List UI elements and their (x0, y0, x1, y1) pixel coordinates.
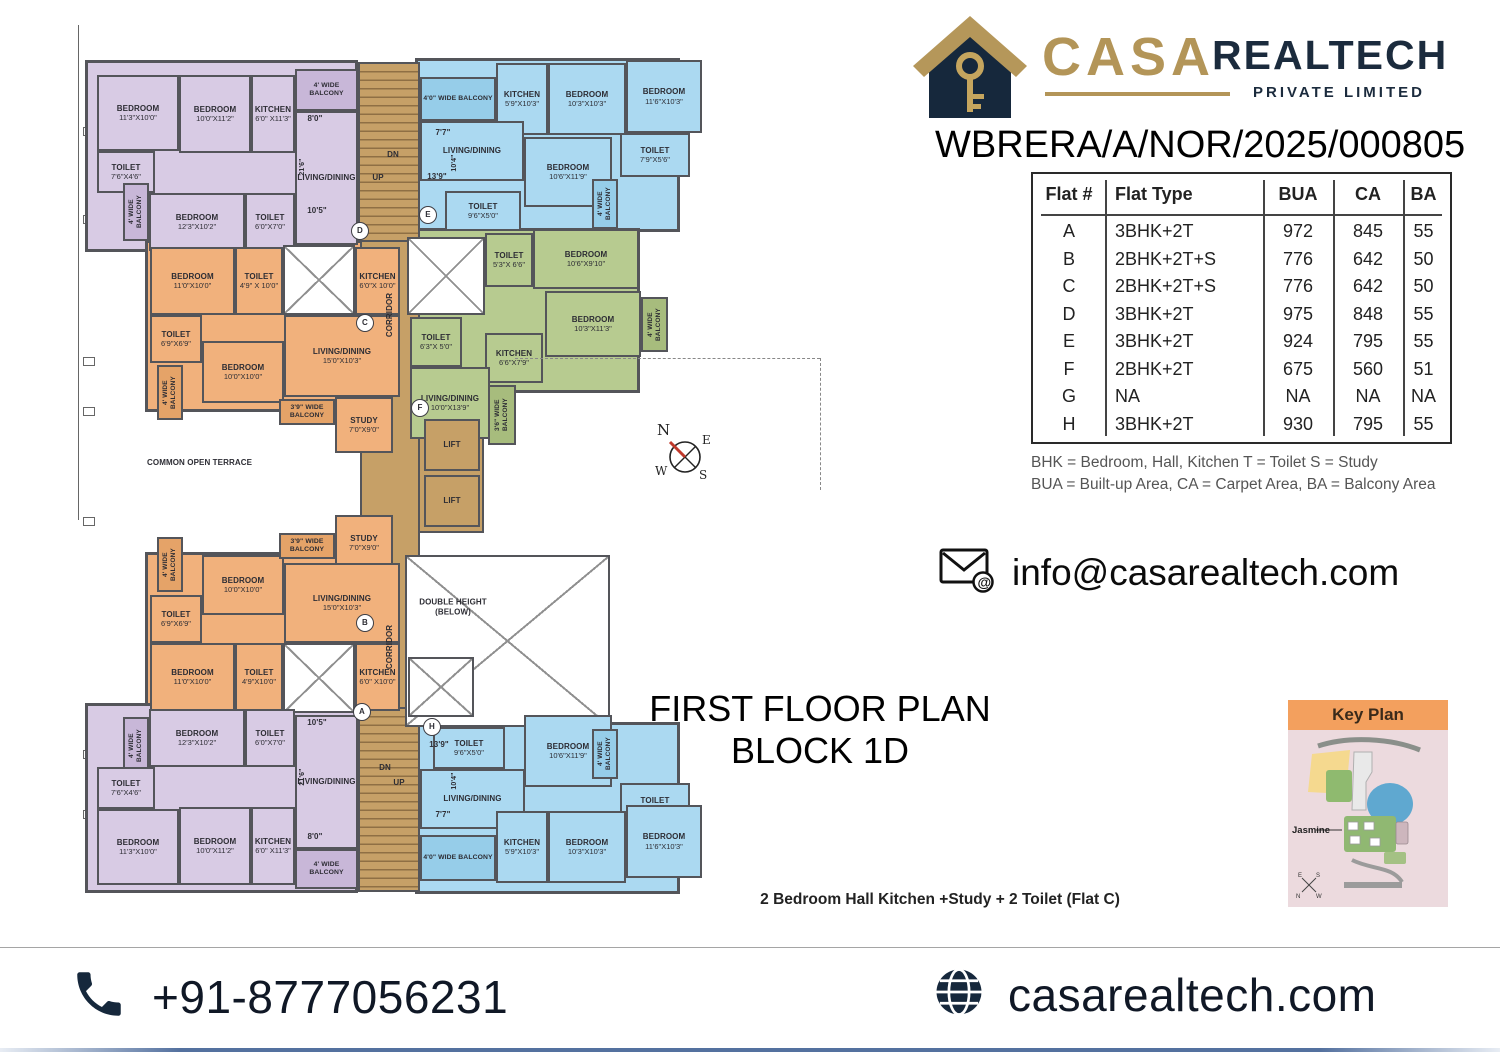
room-bedroom: BEDROOM11'3"X10'0" (97, 75, 179, 151)
svg-text:N: N (1296, 894, 1300, 900)
room-toilet: TOILET6'9"X6'9" (150, 595, 202, 643)
balcony-3-6-wide-balcony: 3'6" WIDE BALCONY (488, 385, 516, 445)
compass-rose: N E W S (647, 417, 721, 496)
room-toilet: TOILET6'0"X7'0" (245, 193, 295, 251)
dim-8-0: 8'0" (308, 832, 323, 842)
key-plan-map: E S N W Jasmine (1288, 730, 1448, 907)
dashh (515, 358, 618, 359)
room-bedroom: BEDROOM10'0"X11'2" (179, 807, 251, 885)
table-cell: E (1033, 331, 1105, 352)
plan-title-line2: BLOCK 1D (620, 730, 1020, 772)
brand-casa: CASA (1042, 26, 1215, 88)
room-bedroom: BEDROOM11'6"X10'3" (626, 60, 702, 133)
dim-10-5: 10'5" (307, 206, 327, 216)
svg-text:W: W (1316, 894, 1322, 900)
balcony-4-wide-balcony: 4' WIDE BALCONY (295, 849, 358, 889)
email-address: info@casarealtech.com (1012, 552, 1399, 594)
room-bedroom: BEDROOM12'3"X10'2" (149, 193, 245, 251)
table-cell: 642 (1333, 249, 1403, 270)
email-icon: @ (938, 546, 996, 599)
website-row: casarealtech.com (932, 965, 1377, 1024)
room-bedroom: BEDROOM11'6"X10'3" (626, 805, 702, 878)
rera-number: WBRERA/A/NOR/2025/000805 (935, 124, 1455, 167)
compass-west-label: W (655, 464, 668, 478)
table-row: H3BHK+2T93079555 (1033, 414, 1450, 435)
svg-text:@: @ (978, 574, 992, 590)
table-column-divider (1105, 180, 1107, 436)
brand-subtitle: PRIVATE LIMITED (1253, 84, 1425, 101)
table-cell: NA (1333, 386, 1403, 407)
room-toilet: TOILET4'9" X 10'0" (235, 247, 283, 315)
room-bedroom: BEDROOM10'0"X11'2" (179, 75, 251, 153)
balcony-4-wide-balcony: 4' WIDE BALCONY (123, 183, 149, 241)
phone-icon (70, 965, 128, 1028)
bottom-accent-line (0, 1048, 1500, 1052)
compass-east-label: E (702, 433, 711, 447)
col-flat-number: Flat # (1033, 184, 1105, 205)
room-bedroom: BEDROOM10'0"X10'0" (202, 341, 284, 403)
key-plan: Key Plan E S N W Jasmine (1288, 700, 1448, 907)
room-toilet: TOILET5'3"X 6'6" (485, 233, 533, 287)
col-bua: BUA (1263, 184, 1333, 205)
table-cell: B (1033, 249, 1105, 270)
table-cell: 675 (1263, 359, 1333, 380)
sq (83, 407, 95, 416)
table-cell: D (1033, 304, 1105, 325)
dim-8-0: 8'0" (308, 114, 323, 124)
phone-row: +91-8777056231 (70, 965, 508, 1028)
marker-f: F (411, 399, 429, 417)
table-cell: 55 (1403, 331, 1444, 352)
dim-7-7: 7'7" (436, 810, 451, 820)
casa-logo-icon (905, 10, 1035, 125)
table-cell: NA (1105, 386, 1263, 407)
balcony-4-wide-balcony: 4' WIDE BALCONY (641, 297, 668, 352)
dashh (618, 358, 820, 359)
table-cell: NA (1263, 386, 1333, 407)
table-header-divider (1041, 214, 1442, 216)
legend-line-1: BHK = Bedroom, Hall, Kitchen T = Toilet … (1031, 452, 1436, 474)
marker-h: H (423, 718, 441, 736)
balcony-3-9-wide-balcony: 3'9" WIDE BALCONY (279, 533, 335, 559)
table-cell: 848 (1333, 304, 1403, 325)
svg-text:E: E (1298, 873, 1302, 879)
footer-divider (0, 947, 1500, 948)
table-row: GNANANANA (1033, 386, 1450, 407)
dashv (820, 358, 821, 490)
room-bedroom: BEDROOM10'0"X10'0" (202, 555, 284, 615)
room-toilet: TOILET6'9"X6'9" (150, 315, 202, 363)
phone-number: +91-8777056231 (152, 970, 508, 1024)
balcony-4-wide-balcony: 4' WIDE BALCONY (295, 69, 358, 111)
table-row: A3BHK+2T97284555 (1033, 221, 1450, 242)
marker-c: C (356, 314, 374, 332)
dim-10-5: 10'5" (307, 718, 327, 728)
key-plan-site-label: Jasmine (1292, 825, 1330, 836)
svg-text:S: S (1316, 873, 1320, 879)
plan-title-line1: FIRST FLOOR PLAN (620, 688, 1020, 730)
stairwell-bottom (358, 707, 420, 892)
room-bedroom: BEDROOM10'3"X10'3" (548, 63, 626, 135)
table-cell: 51 (1403, 359, 1444, 380)
lift-lift: LIFT (424, 475, 480, 527)
shaft (283, 245, 355, 315)
table-cell: 560 (1333, 359, 1403, 380)
table-cell: 3BHK+2T (1105, 221, 1263, 242)
dim-7-7: 7'7" (436, 128, 451, 138)
balcony-4-wide-balcony: 4' WIDE BALCONY (157, 537, 183, 592)
table-cell: 50 (1403, 276, 1444, 297)
table-cell: C (1033, 276, 1105, 297)
table-cell: 2BHK+2T+S (1105, 276, 1263, 297)
col-ca: CA (1333, 184, 1403, 205)
table-row: F2BHK+2T67556051 (1033, 359, 1450, 380)
room-kitchen: KITCHEN5'9"X10'3" (496, 811, 548, 883)
table-cell: F (1033, 359, 1105, 380)
balcony-4-wide-balcony: 4' WIDE BALCONY (592, 729, 618, 779)
room-bedroom: BEDROOM12'3"X10'2" (149, 709, 245, 767)
room-bedroom: BEDROOM10'3"X10'3" (548, 811, 626, 883)
website-url: casarealtech.com (1008, 968, 1377, 1022)
table-cell: 776 (1263, 249, 1333, 270)
dim-up: UP (393, 778, 404, 788)
sq (83, 357, 95, 366)
marker-b: B (356, 614, 374, 632)
table-cell: 55 (1403, 414, 1444, 435)
table-column-divider (1333, 180, 1335, 436)
vline (78, 25, 79, 520)
col-flat-type: Flat Type (1105, 184, 1263, 205)
table-cell: 972 (1263, 221, 1333, 242)
shaft (407, 237, 485, 315)
room-bedroom: BEDROOM11'3"X10'0" (97, 809, 179, 885)
text-common-open-terrace: COMMON OPEN TERRACE (147, 458, 252, 468)
table-cell: 2BHK+2T (1105, 359, 1263, 380)
compass-south-label: S (699, 468, 707, 482)
shaft (408, 657, 474, 717)
globe-icon (932, 965, 986, 1024)
floor-plan: N E W S BEDROOM11'3"X10'0"BEDROOM10'0"X1… (75, 15, 843, 920)
dim-10-4: 10'4" (451, 154, 459, 171)
table-cell: 3BHK+2T (1105, 331, 1263, 352)
brand-realtech: REALTECH (1212, 32, 1448, 79)
room-toilet: TOILET6'3"X 5'0" (410, 317, 462, 367)
dim-13-9: 13'9" (429, 740, 449, 750)
table-cell: NA (1403, 386, 1444, 407)
table-cell: 2BHK+2T+S (1105, 249, 1263, 270)
table-cell: 642 (1333, 276, 1403, 297)
room-toilet: TOILET7'9"X5'6" (620, 133, 690, 177)
table-row: C2BHK+2T+S77664250 (1033, 276, 1450, 297)
marker-e: E (419, 206, 437, 224)
table-column-divider (1263, 180, 1265, 436)
table-cell: G (1033, 386, 1105, 407)
room-living-dining: LIVING/DINING15'0"X10'3" (284, 315, 400, 397)
table-row: E3BHK+2T92479555 (1033, 331, 1450, 352)
room-living-dining: LIVING/DINING15'0"X10'3" (284, 563, 400, 643)
table-column-divider (1403, 180, 1405, 436)
dim-dn: DN (387, 150, 399, 160)
plan-title: FIRST FLOOR PLAN BLOCK 1D (620, 688, 1020, 773)
brand-underline (1045, 92, 1230, 96)
room-bedroom: BEDROOM11'0"X10'0" (150, 247, 235, 315)
marker-d: D (351, 222, 369, 240)
room-study: STUDY7'0"X9'0" (335, 397, 393, 453)
flat-area-table: Flat # Flat Type BUA CA BA A3BHK+2T97284… (1031, 172, 1452, 444)
col-ba: BA (1403, 184, 1444, 205)
table-cell: A (1033, 221, 1105, 242)
room-toilet: TOILET7'6"X4'6" (97, 767, 155, 809)
room-kitchen: KITCHEN6'0" X11'3" (251, 807, 295, 885)
shaft (283, 643, 355, 713)
vtext-corridor: CORRIDOR (385, 625, 395, 669)
room-bedroom: BEDROOM11'0"X10'0" (150, 643, 235, 711)
legend-line-2: BUA = Built-up Area, CA = Carpet Area, B… (1031, 474, 1436, 496)
table-cell: 55 (1403, 221, 1444, 242)
dim-dn: DN (379, 763, 391, 773)
lift-lift: LIFT (424, 419, 480, 471)
abbreviation-legend: BHK = Bedroom, Hall, Kitchen T = Toilet … (1031, 452, 1436, 497)
room-bedroom: BEDROOM10'3"X11'3" (545, 291, 641, 357)
balcony-4-0-wide-balcony: 4'0" WIDE BALCONY (420, 835, 496, 881)
vtext-corridor: CORRIDOR (385, 293, 395, 337)
sq (83, 517, 95, 526)
dim-10-4: 10'4" (451, 772, 459, 789)
dim-21-6: 21'6" (299, 158, 307, 175)
room-toilet: TOILET9'6"X5'0" (445, 191, 521, 231)
table-cell: 795 (1333, 331, 1403, 352)
room-toilet: TOILET4'9"X10'0" (235, 643, 283, 711)
table-row: B2BHK+2T+S77664250 (1033, 249, 1450, 270)
table-cell: 924 (1263, 331, 1333, 352)
text2-double-height-below: DOUBLE HEIGHT (BELOW) (410, 597, 496, 616)
table-cell: 3BHK+2T (1105, 304, 1263, 325)
room-toilet: TOILET6'0"X7'0" (245, 709, 295, 767)
balcony-3-9-wide-balcony: 3'9" WIDE BALCONY (279, 399, 335, 425)
table-cell: H (1033, 414, 1105, 435)
compass-north-label: N (657, 421, 670, 439)
table-row: D3BHK+2T97584855 (1033, 304, 1450, 325)
balcony-4-wide-balcony: 4' WIDE BALCONY (157, 365, 183, 420)
balcony-4-0-wide-balcony: 4'0" WIDE BALCONY (420, 77, 496, 121)
room-kitchen: KITCHEN6'0" X11'3" (251, 75, 295, 153)
dim-up: UP (372, 173, 383, 183)
table-cell: 776 (1263, 276, 1333, 297)
table-cell: 930 (1263, 414, 1333, 435)
table-cell: 50 (1403, 249, 1444, 270)
balcony-4-wide-balcony: 4' WIDE BALCONY (592, 179, 618, 229)
table-cell: 3BHK+2T (1105, 414, 1263, 435)
flat-c-caption: 2 Bedroom Hall Kitchen +Study + 2 Toilet… (700, 891, 1180, 909)
table-cell: 975 (1263, 304, 1333, 325)
table-cell: 795 (1333, 414, 1403, 435)
dim-13-9: 13'9" (427, 172, 447, 182)
flat-table-body: A3BHK+2T97284555B2BHK+2T+S77664250C2BHK+… (1033, 214, 1450, 442)
room-bedroom: BEDROOM10'6"X9'10" (533, 229, 639, 289)
email-row: @ info@casarealtech.com (938, 546, 1399, 599)
room-living-dining: LIVING/DINING (295, 111, 358, 245)
key-plan-title: Key Plan (1288, 700, 1448, 730)
dim-21-6: 21'6" (299, 768, 307, 785)
table-cell: 55 (1403, 304, 1444, 325)
flat-table-header: Flat # Flat Type BUA CA BA (1033, 174, 1450, 214)
marker-a: A (353, 703, 371, 721)
table-cell: 845 (1333, 221, 1403, 242)
